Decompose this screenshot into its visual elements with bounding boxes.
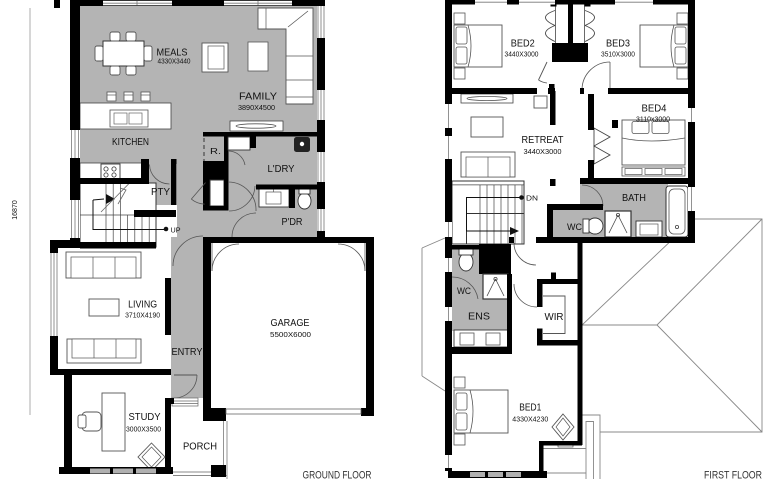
svg-text:3710X4190: 3710X4190 bbox=[125, 311, 160, 320]
svg-text:16870: 16870 bbox=[12, 200, 19, 220]
svg-text:5500X6000: 5500X6000 bbox=[270, 330, 311, 339]
svg-text:FAMILY: FAMILY bbox=[239, 91, 277, 103]
svg-text:STUDY: STUDY bbox=[129, 411, 161, 423]
svg-text:WIR: WIR bbox=[545, 311, 564, 323]
svg-text:3440X3000: 3440X3000 bbox=[524, 147, 562, 156]
svg-text:3110x3000: 3110x3000 bbox=[636, 115, 670, 124]
svg-text:WC: WC bbox=[567, 222, 582, 232]
svg-text:4330X4230: 4330X4230 bbox=[512, 414, 548, 423]
svg-text:3440X3000: 3440X3000 bbox=[505, 50, 539, 59]
svg-text:FIRST FLOOR: FIRST FLOOR bbox=[704, 470, 762, 479]
svg-text:PORCH: PORCH bbox=[183, 441, 217, 453]
svg-text:L'DRY: L'DRY bbox=[268, 163, 295, 175]
svg-text:ENS: ENS bbox=[468, 311, 490, 323]
svg-text:BED1: BED1 bbox=[519, 401, 541, 413]
svg-text:RETREAT: RETREAT bbox=[522, 134, 565, 146]
svg-text:DN: DN bbox=[526, 194, 538, 203]
svg-text:BED4: BED4 bbox=[642, 102, 667, 114]
svg-text:GROUND FLOOR: GROUND FLOOR bbox=[303, 470, 372, 479]
svg-text:LIVING: LIVING bbox=[128, 299, 157, 311]
svg-text:PTY: PTY bbox=[151, 186, 170, 198]
svg-text:WC: WC bbox=[457, 286, 471, 296]
svg-text:3890X4500: 3890X4500 bbox=[238, 103, 275, 112]
svg-text:P'DR: P'DR bbox=[282, 216, 303, 228]
svg-text:4330X3440: 4330X3440 bbox=[158, 57, 191, 66]
svg-text:ENTRY: ENTRY bbox=[172, 346, 203, 358]
svg-text:3000X3500: 3000X3500 bbox=[126, 425, 161, 434]
svg-text:R.: R. bbox=[210, 146, 221, 156]
svg-text:3510X3000: 3510X3000 bbox=[601, 50, 635, 59]
svg-text:UP: UP bbox=[171, 228, 181, 235]
svg-text:KITCHEN: KITCHEN bbox=[112, 136, 149, 148]
svg-text:GARAGE: GARAGE bbox=[271, 317, 310, 329]
svg-text:BED2: BED2 bbox=[511, 37, 535, 49]
svg-text:BED3: BED3 bbox=[606, 37, 630, 49]
svg-text:BATH: BATH bbox=[622, 192, 646, 204]
